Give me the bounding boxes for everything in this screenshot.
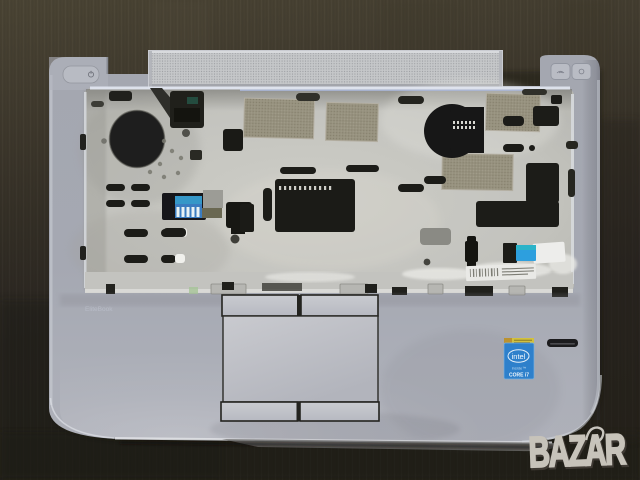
svg-text:inside™: inside™ xyxy=(512,366,526,371)
svg-text:BAZAR: BAZAR xyxy=(528,424,627,476)
svg-text:intel: intel xyxy=(512,352,526,361)
svg-text:CORE i7: CORE i7 xyxy=(509,373,529,379)
svg-text:EliteBook: EliteBook xyxy=(85,306,113,313)
